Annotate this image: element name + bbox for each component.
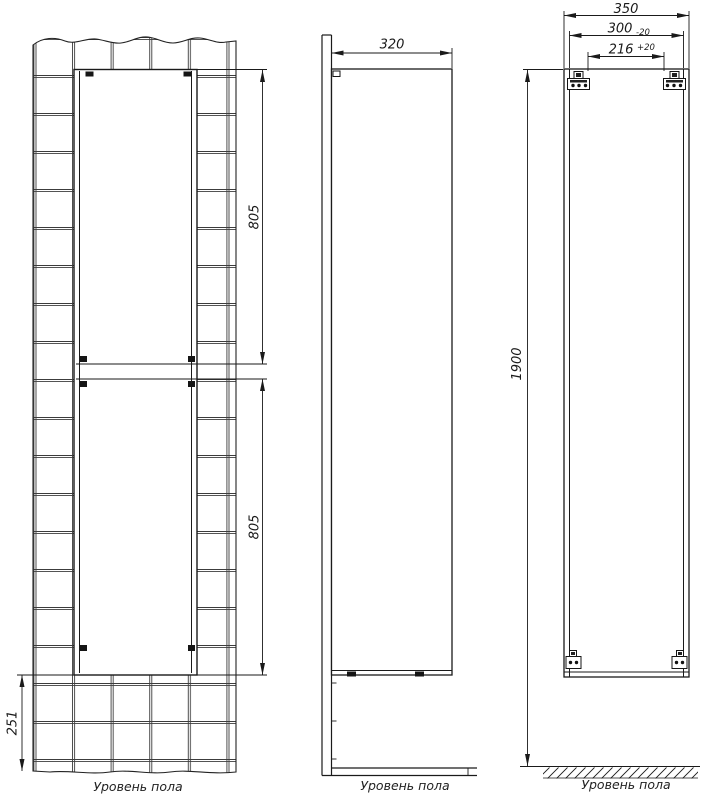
dim-label-320: 320 — [380, 38, 405, 53]
dim-depth: 320 — [332, 38, 453, 69]
dim-mount-pitch: 216 +20 — [588, 43, 664, 58]
floor-side — [322, 768, 477, 776]
dim-mount-span: 300 -20 — [570, 22, 684, 39]
dim-floor-clearance: 251 — [6, 675, 23, 771]
dim-label-350: 350 — [614, 2, 639, 17]
wall-section — [322, 35, 332, 776]
technical-drawing: 805 805 251 Уровень пола — [0, 0, 722, 800]
cabinet-front — [74, 70, 197, 676]
dim-label-805-lower: 805 — [248, 515, 263, 540]
wall-hanger-side — [333, 71, 340, 77]
side-view: 320 Уровень пола — [322, 35, 477, 793]
dim-label-805-upper: 805 — [248, 205, 263, 230]
floor-level-label-side: Уровень пола — [360, 778, 449, 793]
back-extension-lines — [523, 11, 689, 71]
dim-overall-height: 1900 — [510, 70, 528, 766]
dim-overall-width: 350 — [564, 2, 689, 17]
front-view: 805 805 251 Уровень пола — [6, 37, 268, 794]
floor-level-label-back: Уровень пола — [581, 777, 670, 792]
dim-lower-door: 805 — [248, 379, 263, 675]
dim-label-216: 216 — [609, 43, 634, 58]
drawing-sheet: 805 805 251 Уровень пола — [0, 0, 722, 800]
back-view: 350 300 -20 216 +20 1900 Уровень пола — [510, 2, 703, 792]
dim-label-300-tolerance: -20 — [636, 28, 650, 38]
dim-upper-door: 805 — [248, 70, 263, 364]
dim-label-1900: 1900 — [510, 347, 525, 380]
dim-label-216-tolerance: +20 — [637, 43, 655, 53]
floor-level-label-front: Уровень пола — [93, 779, 182, 794]
cabinet-side — [332, 69, 453, 677]
cabinet-back — [564, 69, 689, 677]
dim-label-251: 251 — [6, 711, 21, 736]
dim-label-300: 300 — [608, 22, 633, 37]
